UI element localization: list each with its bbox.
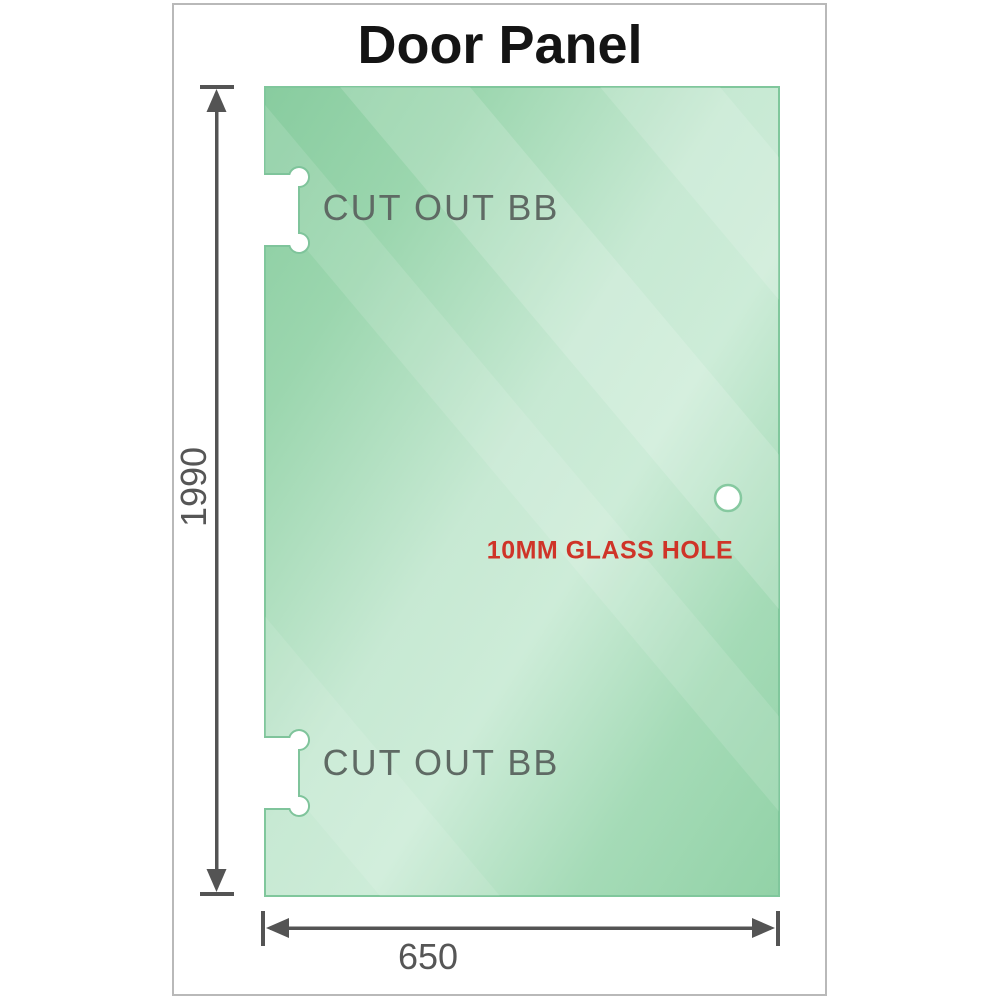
arrow-right-icon (752, 918, 775, 938)
page-title: Door Panel (357, 14, 642, 76)
height-dim-bottom-cap (200, 892, 234, 896)
glass-hole-label: 10MM GLASS HOLE (487, 537, 733, 566)
height-dim-line (215, 95, 219, 886)
width-dim-left-tick (261, 911, 265, 946)
width-dim-right-tick (776, 911, 780, 946)
height-dim-top-cap (200, 85, 234, 89)
arrow-left-icon (266, 918, 289, 938)
arrow-down-icon (207, 869, 227, 892)
width-dimension-value: 650 (398, 936, 458, 978)
width-dimension (261, 911, 780, 946)
cutout-bottom-label: CUT OUT BB (323, 742, 560, 784)
height-dimension-value: 1990 (173, 447, 215, 527)
door-panel-drawing (0, 0, 1000, 1000)
width-dim-line (270, 927, 771, 931)
arrow-up-icon (207, 89, 227, 112)
cutout-top-label: CUT OUT BB (323, 187, 560, 229)
glass-hole (715, 485, 741, 511)
